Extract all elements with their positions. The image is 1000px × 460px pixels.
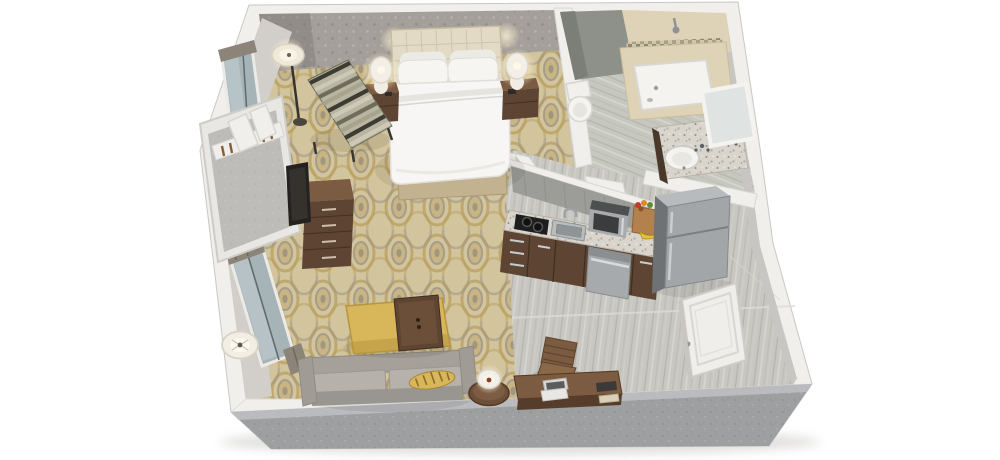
closet [200,96,300,262]
tray-table [394,295,443,351]
suite-floorplan: 3D isometric floor plan of a hotel studi… [0,0,1000,460]
wall-tv [286,162,311,226]
notepad [599,394,619,403]
desk [514,371,622,410]
nightstand-right [497,48,539,120]
king-bed [389,26,510,200]
ottoman-bench [343,295,453,358]
mirror [702,84,755,146]
floorplan-canvas: 3D isometric floor plan of a hotel studi… [0,0,1000,460]
laptop [541,378,568,401]
refrigerator [652,186,737,298]
side-table-lamp [478,370,501,389]
dishwasher [586,247,631,299]
floor-lamp-living [222,332,258,359]
